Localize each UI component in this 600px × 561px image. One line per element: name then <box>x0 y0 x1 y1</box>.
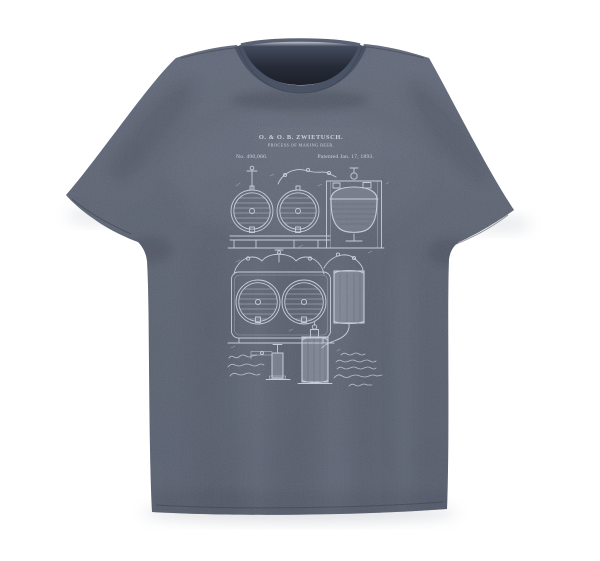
product-photo: O. & O. B. ZWIETUSCH. PROCESS OF MAKING … <box>0 0 600 561</box>
filter-cylinder-body <box>334 271 364 323</box>
kettle-body <box>331 187 377 232</box>
patent-inventor-line: O. & O. B. ZWIETUSCH. <box>259 134 343 141</box>
carbonator-body <box>302 337 328 382</box>
patent-date: Patented Jan. 17, 1893. <box>318 154 375 160</box>
patent-number: No. 490,066. <box>236 154 268 160</box>
tshirt-image: O. & O. B. ZWIETUSCH. PROCESS OF MAKING … <box>0 0 600 561</box>
patent-title-line: PROCESS OF MAKING BEER. <box>268 143 334 148</box>
pump-body <box>272 353 283 378</box>
